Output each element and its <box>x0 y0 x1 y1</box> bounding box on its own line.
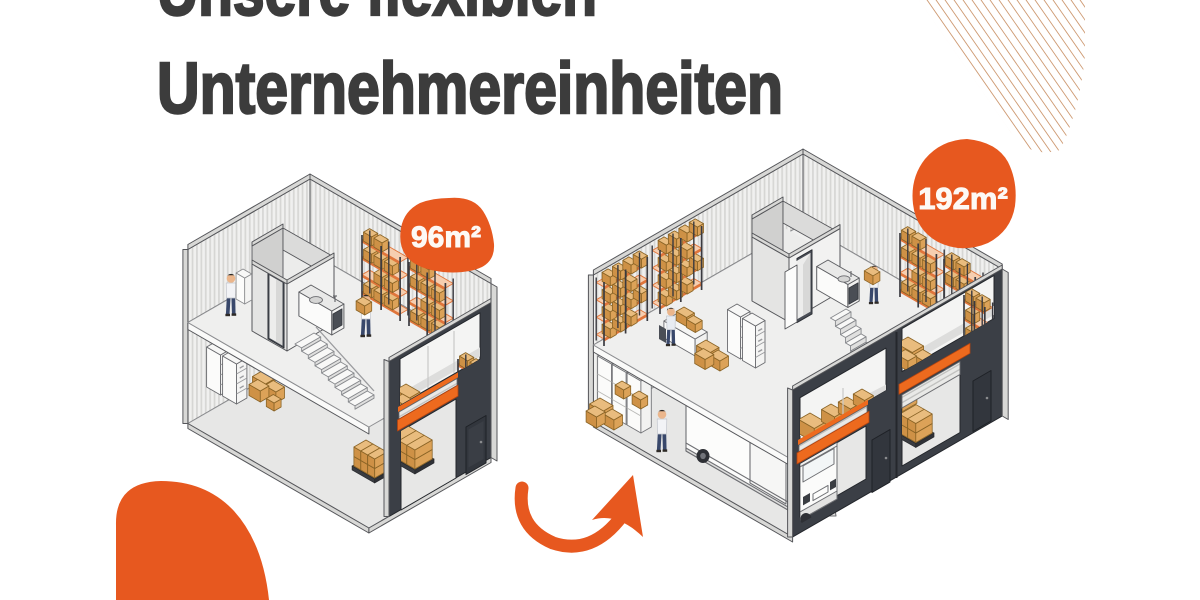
svg-text:Unternehmereinheiten: Unternehmereinheiten <box>157 49 783 129</box>
svg-text:Unsere flexiblen: Unsere flexiblen <box>157 0 597 31</box>
svg-text:96m²: 96m² <box>411 221 481 254</box>
svg-text:192m²: 192m² <box>918 181 1008 216</box>
